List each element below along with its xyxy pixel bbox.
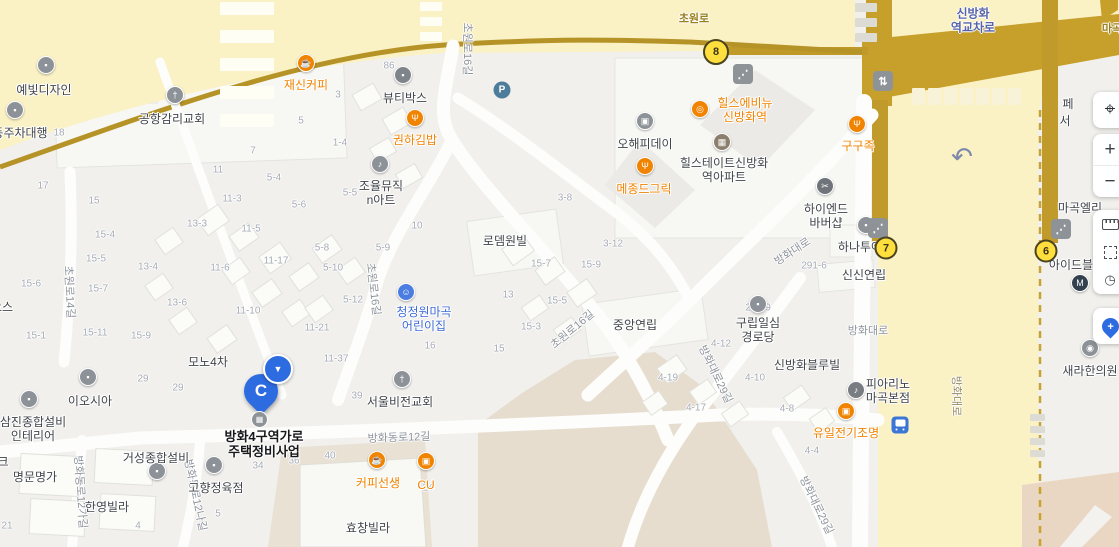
lot-number: 15-3 [521, 322, 541, 333]
poi-apartment-icon[interactable]: ▦ [713, 133, 731, 151]
poi-label[interactable]: 로뎀원빌 [483, 234, 527, 248]
road-label: 역교차로 [951, 19, 995, 36]
poi-label[interactable]: 권하김밥 [393, 133, 437, 147]
poi-label[interactable]: 하이엔드바버샵 [804, 202, 848, 230]
measure-distance-button[interactable] [1093, 210, 1119, 238]
lot-number: 5-5 [343, 188, 357, 199]
poi-line: 청정원마곡 [396, 305, 451, 319]
road-label: 방화대로29길 [796, 473, 838, 536]
road-label: 초원로16길 [547, 306, 598, 352]
road-label: 방화동로12가길 [70, 455, 91, 529]
poi-scissors-icon[interactable]: ✂ [816, 177, 834, 195]
road-label: 초원로16길 [363, 262, 385, 316]
poi-line: 구립일심 [736, 316, 780, 330]
road-label: 초원로16길 [460, 23, 476, 76]
poi-label[interactable]: 명문명가 [13, 470, 57, 484]
area-icon [1104, 246, 1117, 259]
lot-number: 7 [250, 146, 256, 157]
poi-store-icon[interactable]: ▣ [417, 452, 435, 470]
road-label: 방화동로12길 [367, 428, 430, 446]
elevator-icon: ⇅ [873, 71, 893, 91]
road-label: 방화대로29길 [695, 342, 737, 405]
poi-line: 커피선생 [356, 476, 400, 490]
poi-line: 유일전기조명 [813, 426, 879, 440]
poi-line: 중앙연립 [613, 318, 657, 332]
poi-label[interactable]: 페 [1062, 97, 1073, 111]
lot-number: 15-9 [131, 331, 151, 342]
poi-line: 오스 [0, 300, 13, 314]
subway-exit-8-badge: 8 [703, 39, 729, 65]
lot-number: 15-5 [547, 296, 567, 307]
poi-line: 오해피데이 [617, 137, 672, 151]
poi-label[interactable]: 아이드블 [1049, 258, 1093, 272]
poi-dot-icon[interactable]: ▪ [394, 66, 412, 84]
lot-number: 21 [1, 521, 12, 532]
poi-line: 새라한의원 [1062, 364, 1117, 378]
poi-label[interactable]: 오해피데이 [617, 137, 672, 151]
poi-label[interactable]: 뷰티박스 [383, 91, 427, 105]
poi-label[interactable]: 구립일심경로당 [736, 316, 780, 344]
poi-store-icon[interactable]: ▣ [636, 112, 654, 130]
poi-line: 뷰티박스 [383, 91, 427, 105]
poi-line: 서 [1059, 114, 1070, 128]
lot-number: 15 [493, 344, 504, 355]
current-location-button[interactable]: ⌖ [1093, 92, 1119, 128]
poi-dot-icon[interactable]: ▪ [37, 56, 55, 74]
poi-label[interactable]: 힐스에비뉴신방화역 [717, 96, 772, 124]
poi-label[interactable]: 피아리노마곡본점 [866, 377, 910, 405]
lot-number: 18 [53, 128, 64, 139]
poi-line: 힐스테이트신방화 [680, 156, 768, 170]
lot-number: 15-11 [83, 328, 108, 339]
poi-label[interactable]: 중앙연립 [613, 318, 657, 332]
add-pin-icon: + [1098, 314, 1119, 338]
poi-line: 경로당 [736, 330, 780, 344]
poi-church-icon[interactable]: † [166, 86, 184, 104]
poi-child-icon[interactable]: ☺ [397, 283, 415, 301]
lot-number: 86 [383, 61, 394, 72]
subway-exit-7-badge: 7 [875, 237, 898, 260]
poi-line: 효창빌라 [346, 521, 390, 535]
dial-icon: ◷ [1104, 272, 1115, 288]
redevelopment-site-icon: ▦ [251, 411, 268, 428]
poi-line: 피아리노 [866, 377, 910, 391]
poi-line: 거성종합설비 [123, 451, 189, 465]
poi-line: 모노4차 [188, 355, 228, 369]
zoom-in-button[interactable]: + [1093, 134, 1119, 166]
lot-number: 11-10 [236, 306, 261, 317]
map-tools: ◷ [1093, 210, 1119, 294]
poi-music-icon[interactable]: ♪ [371, 155, 389, 173]
lot-number: 15-1 [26, 331, 46, 342]
zoom-control: + − [1093, 134, 1119, 197]
poi-label[interactable]: 고향정육점 [188, 481, 243, 495]
lot-number: 5-8 [315, 243, 329, 254]
poi-line: 조율뮤직 [359, 179, 403, 193]
poi-label[interactable]: CU [417, 478, 434, 492]
lot-number: 3-12 [603, 239, 623, 250]
ruler-icon [1102, 219, 1119, 230]
poi-subway-icon[interactable]: M [1071, 274, 1089, 292]
poi-line: 공항감리교회 [139, 112, 205, 126]
poi-line: 권하김밥 [393, 133, 437, 147]
lot-number: 5-10 [323, 263, 343, 274]
lot-number: 15-6 [21, 279, 41, 290]
poi-dot-icon[interactable]: ▪ [79, 368, 97, 386]
poi-line: 신신연립 [842, 268, 886, 282]
bus-icon [892, 417, 909, 434]
lot-number: 1-4 [333, 138, 347, 149]
lot-number: 40 [324, 451, 335, 462]
poi-line: 힐스에비뉴 [717, 96, 772, 110]
poi-label[interactable]: 새라한의원 [1062, 364, 1117, 378]
poi-line: 로뎀원빌 [483, 234, 527, 248]
escalator-icon: ⋰ [868, 218, 888, 238]
poi-dot-icon[interactable]: ▪ [749, 295, 767, 313]
poi-line: 신방화블루빌 [774, 358, 840, 372]
poi-dot-icon[interactable]: ▪ [6, 101, 24, 119]
poi-label[interactable]: 동주차대행 [0, 126, 48, 140]
poi-label[interactable]: 삼진종합설비인테리어 [0, 415, 66, 443]
poi-label[interactable]: 신신연립 [842, 268, 886, 282]
poi-line: 바버샵 [804, 216, 848, 230]
poi-ring-icon[interactable]: ◎ [691, 100, 709, 118]
poi-line: 동주차대행 [0, 126, 48, 140]
marker-arrow-icon: ▼ [274, 364, 283, 374]
poi-line: 인테리어 [0, 429, 66, 443]
lot-number: 5-6 [292, 200, 306, 211]
zoom-out-button[interactable]: − [1093, 166, 1119, 197]
poi-label[interactable]: 힐스테이트신방화역아파트 [680, 156, 768, 184]
lot-number: 11-17 [264, 256, 289, 267]
poi-line: 하이엔드 [804, 202, 848, 216]
poi-label[interactable]: 크 [0, 455, 9, 469]
poi-label[interactable]: 거성종합설비 [123, 451, 189, 465]
lot-number: 15-7 [88, 284, 108, 295]
measure-area-button[interactable] [1093, 238, 1119, 266]
poi-piano-icon[interactable]: ♪ [847, 381, 865, 399]
poi-coffee-icon[interactable]: ☕ [368, 451, 386, 469]
poi-line: 메종드그릭 [616, 182, 671, 196]
poi-line: 역아파트 [680, 170, 768, 184]
poi-label[interactable]: 메종드그릭 [616, 182, 671, 196]
lot-number: 15-9 [581, 260, 601, 271]
poi-label[interactable]: 서울비전교회 [367, 395, 433, 409]
uturn-icon: ↶ [951, 142, 973, 173]
poi-dot-icon[interactable]: ▪ [205, 456, 223, 474]
poi-label[interactable]: 유일전기조명 [813, 426, 879, 440]
poi-label[interactable]: 공항감리교회 [139, 112, 205, 126]
poi-line: 명문명가 [13, 470, 57, 484]
poi-line: 이오시아 [68, 394, 112, 408]
road-label: 방화대로 [949, 376, 965, 416]
poi-line: 재신커피 [284, 78, 328, 92]
lot-number: 13-3 [187, 219, 207, 230]
poi-dot-icon[interactable]: ▪ [20, 390, 38, 408]
lot-number: 3 [335, 90, 341, 101]
poi-label[interactable]: 예빛디자인 [16, 83, 71, 97]
poi-label[interactable]: 한영빌라 [85, 500, 129, 514]
poi-label[interactable]: 모노4차 [188, 355, 228, 369]
poi-line: 예빛디자인 [16, 83, 71, 97]
lot-number: 11-37 [324, 354, 349, 365]
lot-number: 15-5 [86, 254, 106, 265]
poi-line: 삼진종합설비 [0, 415, 66, 429]
road-label: 마곡 [1102, 20, 1119, 36]
lot-number: 29 [172, 383, 183, 394]
road-label: 방화대로 [848, 322, 888, 338]
poi-label[interactable]: 서 [1059, 114, 1070, 128]
selected-place-label[interactable]: 방화4구역가로 주택정비사업 [225, 429, 304, 459]
escalator-icon: ⋰ [733, 64, 753, 84]
lot-number: 291-6 [801, 261, 827, 272]
poi-line: 어린이집 [396, 319, 451, 333]
poi-church-icon[interactable]: † [393, 370, 411, 388]
lot-number: 11-21 [305, 323, 330, 334]
lot-number: 15-7 [531, 259, 551, 270]
lot-number: 16 [424, 341, 435, 352]
lot-number: 39 [351, 391, 362, 402]
poi-line: 아이드블 [1049, 258, 1093, 272]
poi-label[interactable]: 신방화블루빌 [774, 358, 840, 372]
poi-label[interactable]: 조율뮤직n아트 [359, 179, 403, 207]
poi-line: 서울비전교회 [367, 395, 433, 409]
lot-number: 5-4 [267, 173, 281, 184]
road-label: 초원로14길 [61, 265, 80, 318]
lot-number: 4-17 [686, 403, 706, 414]
subway-exit-6-badge: 6 [1035, 240, 1058, 263]
locate-icon: ⌖ [1105, 99, 1116, 121]
map-labels-layer: ☕재신커피Ψ권하김밥Ψ메종드그릭◎힐스에비뉴신방화역Ψ구구족☕커피선생▣CU▣유… [0, 0, 1119, 547]
lot-number: 17 [37, 181, 48, 192]
poi-label[interactable]: 재신커피 [284, 78, 328, 92]
poi-line: 고향정육점 [188, 481, 243, 495]
poi-restaurant-icon[interactable]: Ψ [848, 115, 866, 133]
poi-label[interactable]: 청정원마곡어린이집 [396, 305, 451, 333]
lot-number: 4-12 [711, 339, 731, 350]
lot-number: 11 [213, 165, 223, 176]
poi-line: n아트 [359, 193, 403, 207]
lot-number: 5-9 [376, 243, 390, 254]
poi-line: 마곡본점 [866, 391, 910, 405]
lot-number: 15-4 [95, 230, 115, 241]
poi-coffee-icon[interactable]: ☕ [297, 54, 315, 72]
lot-number: 10 [411, 221, 422, 232]
poi-line: 한영빌라 [85, 500, 129, 514]
lot-number: 13 [502, 290, 513, 301]
poi-label[interactable]: 이오시아 [68, 394, 112, 408]
lot-number: 29 [137, 374, 148, 385]
lot-number: 13-4 [138, 262, 158, 273]
poi-restaurant-icon[interactable]: Ψ [406, 109, 424, 127]
lot-number: 3-8 [558, 193, 572, 204]
lot-number: 4-4 [805, 446, 819, 457]
poi-label[interactable]: 커피선생 [356, 476, 400, 490]
selected-place-line2: 주택정비사업 [225, 444, 304, 459]
lot-number: 15 [88, 196, 99, 207]
road-label: 초원로 [679, 10, 709, 26]
lot-number: 4-19 [658, 373, 678, 384]
poi-line: 구구족 [841, 139, 874, 153]
lot-number: 5-12 [343, 295, 363, 306]
poi-store-icon[interactable]: ▣ [837, 402, 855, 420]
lot-number: 34 [252, 461, 263, 472]
lot-number: 4-8 [780, 404, 794, 415]
lot-number: 11-3 [222, 194, 241, 205]
compass-dial-button[interactable]: ◷ [1093, 266, 1119, 294]
lot-number: 5 [215, 509, 221, 520]
parking-icon: P [494, 82, 511, 99]
poi-line: 페 [1062, 97, 1073, 111]
poi-line: 신방화역 [717, 110, 772, 124]
escalator-icon: ⋰ [1051, 219, 1071, 239]
selected-place-secondary-marker[interactable]: ▼ [263, 354, 293, 384]
lot-number: 5 [298, 116, 304, 127]
poi-restaurant-icon[interactable]: Ψ [636, 157, 654, 175]
poi-line: 크 [0, 455, 9, 469]
selected-place-line1: 방화4구역가로 [225, 429, 304, 444]
lot-number: 11-5 [241, 224, 260, 235]
map-page: { "map": { "selected_place": {"line1":"방… [0, 0, 1119, 547]
poi-label[interactable]: 효창빌라 [346, 521, 390, 535]
add-place-button[interactable]: + [1093, 308, 1119, 344]
lot-number: 11-6 [210, 263, 229, 274]
lot-number: 13-6 [167, 298, 187, 309]
lot-number: 4 [135, 521, 141, 532]
poi-label[interactable]: 구구족 [841, 139, 874, 153]
poi-label[interactable]: 오스 [0, 300, 13, 314]
lot-number: 4-10 [745, 373, 765, 384]
poi-line: CU [417, 478, 434, 492]
